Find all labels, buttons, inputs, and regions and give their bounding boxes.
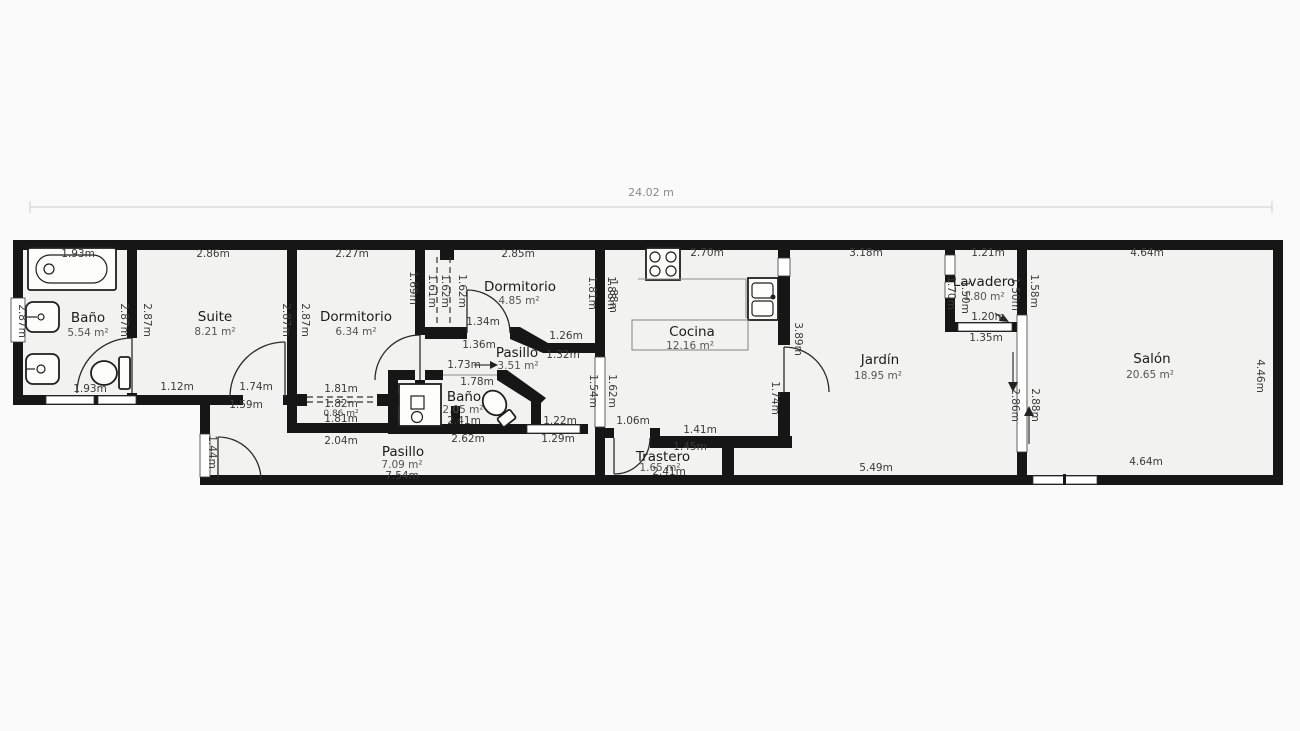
dim-lavadero-left-b: 1.50m: [959, 280, 971, 314]
window-cocina-right: [778, 258, 790, 276]
window-lavadero-a: [945, 255, 955, 275]
dim-bano1-wall-right: 2.87m: [141, 303, 153, 337]
window-salon-left: [1017, 315, 1027, 452]
room-dorm2-name: Dormitorio: [484, 279, 556, 295]
dim-wardrobe-a: 1.81m: [324, 383, 358, 395]
window-lavadero-bottom: [958, 323, 1012, 331]
sink-icon: [26, 302, 59, 332]
dim-pasillo2-door: 1.44m: [206, 435, 218, 469]
dim-jardin-right: 2.86m: [1009, 388, 1021, 422]
dim-suite-wall-right: 2.87m: [299, 303, 311, 337]
dim-cocina-left: 1.88m: [607, 279, 619, 313]
dim-dorm2-top: 2.85m: [501, 248, 535, 260]
dim-window2-a: 1.54m: [587, 374, 599, 408]
dim-cocina-bottom-a: 1.06m: [616, 415, 650, 427]
dim-window1-b: 1.29m: [541, 433, 575, 445]
room-dorm2-area: 4.85 m²: [498, 295, 539, 307]
dim-jardin-top: 3.18m: [849, 247, 883, 259]
dim-dorm1-top: 2.27m: [335, 248, 369, 260]
room-suite-name: Suite: [198, 309, 232, 325]
floorplan-svg: 24.02 m: [0, 0, 1300, 731]
dim-wardrobe-c: 1.81m: [324, 413, 358, 425]
dim-lavadero-bottom-a: 1.20m: [971, 311, 1005, 323]
dim-pasillo1-b: 1.32m: [546, 349, 580, 361]
room-pasillo1-name: Pasillo: [496, 345, 538, 361]
dim-lavadero-bottom-b: 1.35m: [969, 332, 1003, 344]
dim-bano2-bottom: 2.62m: [451, 433, 485, 445]
room-dorm1-name: Dormitorio: [320, 309, 392, 325]
dim-jardin-bottom: 5.49m: [859, 462, 893, 474]
room-trastero-length: 2.41m: [652, 466, 686, 478]
room-bano2-name: Baño: [447, 389, 481, 405]
dim-cocina-right-b: 1.74m: [769, 381, 781, 415]
window-bano1-bottom-a: [46, 396, 94, 404]
dim-cocina-top: 2.70m: [690, 247, 724, 259]
dim-dorm2-door-b: 1.36m: [462, 339, 496, 351]
room-jardin-name: Jardín: [860, 352, 899, 368]
dim-closet-c: 1.62m: [456, 274, 468, 308]
dim-window1-a: 1.22m: [543, 415, 577, 427]
dim-trastero-top: 1.45m: [673, 441, 707, 453]
room-cocina-name: Cocina: [669, 324, 715, 340]
stove-icon: [646, 248, 680, 280]
dim-pasillo1-a: 1.26m: [549, 330, 583, 342]
kitchen-sink-icon: [748, 278, 778, 320]
dim-lavadero-left-a: 1.70m: [945, 276, 957, 310]
dim-dorm1-right: 1.69m: [407, 271, 419, 305]
room-bano2-length: 2.41m: [447, 415, 481, 427]
window-bano1-bottom-b: [98, 396, 136, 404]
dim-suite-door: 1.59m: [229, 399, 263, 411]
dim-salon-bottom: 4.64m: [1129, 456, 1163, 468]
room-jardin-area: 18.95 m²: [854, 370, 902, 382]
total-width-label: 24.02 m: [628, 186, 674, 199]
dim-bano2-top: 1.78m: [460, 376, 494, 388]
dim-closet-a: 1.61m: [426, 274, 438, 308]
dim-bano1-wall-left: 2.87m: [118, 303, 130, 337]
room-pasillo1-area: 3.51 m²: [497, 360, 538, 372]
dim-salon-top: 4.64m: [1130, 247, 1164, 259]
room-suite-area: 8.21 m²: [194, 326, 235, 338]
dim-window2-b: 1.62m: [606, 374, 618, 408]
floorplan-canvas: 24.02 m: [0, 0, 1300, 731]
dim-closet-b: 1.62m: [439, 274, 451, 308]
shower-icon: [399, 384, 441, 426]
dim-cocina-bottom-b: 1.41m: [683, 424, 717, 436]
room-salon-name: Salón: [1133, 351, 1170, 367]
dim-pasillo2-top: 2.04m: [324, 435, 358, 447]
dim-lavadero-top: 1.21m: [971, 247, 1005, 259]
room-pasillo2-name: Pasillo: [382, 444, 424, 460]
dim-dorm2-right-a: 1.81m: [586, 276, 598, 310]
dim-cocina-right-a: 3.89m: [792, 322, 804, 356]
room-bano1-area: 5.54 m²: [67, 327, 108, 339]
dim-suite-top: 2.86m: [196, 248, 230, 260]
room-cocina-area: 12.16 m²: [666, 340, 714, 352]
dim-tub-width: 1.93m: [61, 248, 95, 260]
dim-suite-wall-left: 2.87m: [280, 303, 292, 337]
dim-bano1-window: 2.87m: [16, 304, 28, 338]
dim-salon-right: 4.46m: [1254, 359, 1266, 393]
room-bano1-name: Baño: [71, 310, 105, 326]
dim-dorm2-door-a: 1.34m: [466, 316, 500, 328]
bidet-icon: [26, 354, 59, 384]
room-dorm1-area: 6.34 m²: [335, 326, 376, 338]
room-salon-area: 20.65 m²: [1126, 369, 1174, 381]
room-pasillo2-length: 7.54m: [385, 470, 419, 482]
overall-dimension: 24.02 m: [30, 186, 1272, 213]
dim-lavadero-right: 1.50m: [1009, 277, 1021, 311]
dim-salon-left-a: 1.58m: [1028, 274, 1040, 308]
dim-bano2-door: 1.73m: [447, 359, 481, 371]
dim-suite-bottom-b: 1.74m: [239, 381, 273, 393]
dim-suite-bottom-a: 1.12m: [160, 381, 194, 393]
dim-salon-left-b: 2.88m: [1029, 388, 1041, 422]
dim-bano1-bottom: 1.93m: [73, 383, 107, 395]
